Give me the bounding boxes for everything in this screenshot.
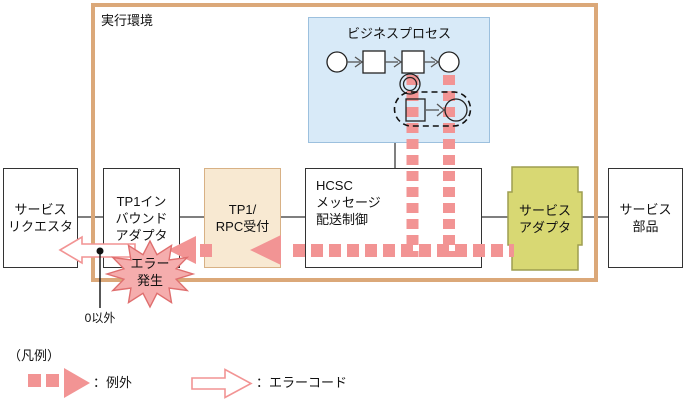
service-adapter-label-line1: サービス <box>519 202 571 219</box>
business-process-title: ビジネスプロセス <box>309 23 489 42</box>
tp1-rpc-label-line1: TP1/ <box>229 201 256 218</box>
hcsc-label-line2: メッセージ <box>316 194 381 211</box>
return-value-label: 0以外 <box>74 309 126 326</box>
diagram-canvas: 実行環境 ビジネスプロセス サービス リクエスタ TP1イン バウンド アダプタ… <box>0 0 687 403</box>
legend-title: （凡例） <box>8 345 60 364</box>
hcsc-label-line1: HCSC <box>316 177 353 194</box>
business-process-box: ビジネスプロセス <box>308 17 490 143</box>
error-burst-label: エラー 発生 <box>108 255 192 289</box>
error-burst-label-line2: 発生 <box>108 272 192 289</box>
service-component-box: サービス 部品 <box>608 168 683 268</box>
error-burst-label-line1: エラー <box>108 255 192 272</box>
tp1-rpc-label-line2: RPC受付 <box>216 218 269 235</box>
service-requester-label-line1: サービス <box>14 201 66 218</box>
tp1-inbound-label-line3: アダプタ <box>115 227 167 244</box>
hcsc-message-control-box: HCSC メッセージ 配送制御 <box>305 168 482 268</box>
service-requester-box: サービス リクエスタ <box>3 168 78 268</box>
tp1-inbound-label-line1: TP1イン <box>117 193 167 210</box>
legend-exception-dashed-arrow-icon <box>28 368 90 398</box>
service-component-label-line1: サービス <box>619 201 671 218</box>
service-adapter-label-line2: アダプタ <box>519 219 571 236</box>
service-adapter-label: サービス アダプタ <box>508 167 582 270</box>
service-requester-label-line2: リクエスタ <box>8 218 73 235</box>
service-component-label-line2: 部品 <box>632 218 658 235</box>
legend-error-code-arrow-icon <box>191 368 254 399</box>
hcsc-label-line3: 配送制御 <box>316 211 368 228</box>
tp1-inbound-adapter-box: TP1イン バウンド アダプタ <box>103 168 180 268</box>
legend-error-code-label: ：エラーコード <box>256 372 347 394</box>
execution-environment-label: 実行環境 <box>101 10 153 29</box>
tp1-inbound-label-line2: バウンド <box>115 210 167 227</box>
tp1-rpc-reception-box: TP1/ RPC受付 <box>204 168 281 268</box>
legend-exception-label: ：例外 <box>93 372 132 394</box>
